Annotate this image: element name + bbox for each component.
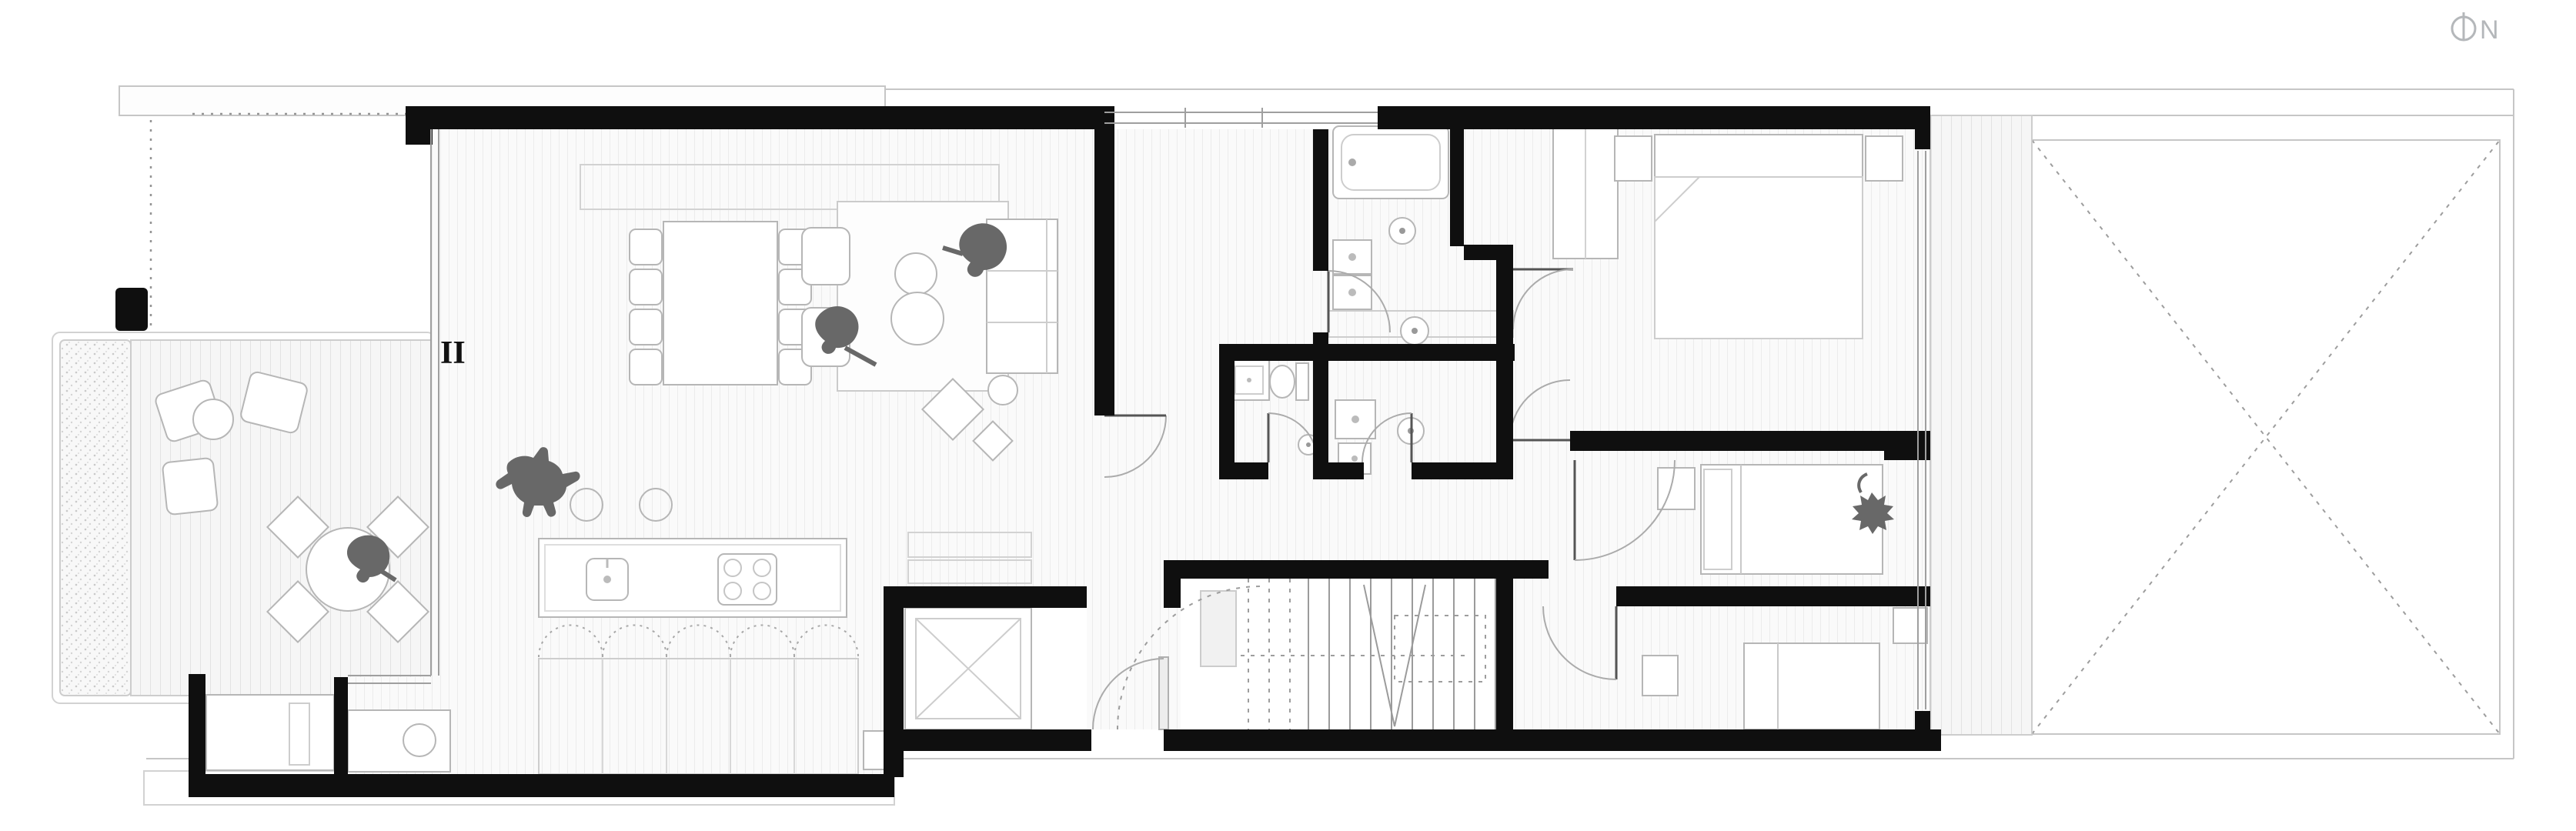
wall-niche-left: [884, 608, 904, 777]
side-table: [988, 375, 1017, 405]
wall: [1219, 462, 1268, 479]
bathtub-faucet: [1348, 159, 1356, 166]
nightstand: [1866, 136, 1903, 181]
wall-niche-top: [884, 586, 1087, 608]
garden-bed: [60, 340, 131, 696]
washbasin-drain: [1399, 228, 1405, 234]
dryer-drum: [1348, 289, 1356, 296]
floor-plan-root: NII: [52, 12, 2514, 805]
wall-stair-top: [1164, 560, 1549, 579]
wall: [1219, 344, 1515, 361]
wall: [1219, 361, 1235, 479]
wall: [334, 677, 348, 776]
washing-machine-drum: [1348, 253, 1356, 261]
window-seat-bench: [206, 695, 334, 770]
east-deck-strip: [1930, 115, 2032, 735]
dining-chair: [630, 269, 662, 305]
dining-chair: [630, 229, 662, 265]
toilet-bowl: [1270, 365, 1295, 398]
dining-chair: [630, 309, 662, 345]
north-window-mullions: [1185, 108, 1262, 128]
wall: [1915, 711, 1930, 731]
bed-double: [1655, 135, 1863, 339]
appliance-drum: [1351, 415, 1359, 423]
wall: [1318, 462, 1364, 479]
wc-washbasin-drain: [1306, 442, 1311, 447]
wall-hall-living: [1094, 106, 1114, 415]
wall: [1884, 431, 1930, 460]
section-marker: II: [440, 335, 466, 371]
wall: [1496, 576, 1513, 731]
coffee-table: [895, 253, 937, 295]
nightstand: [1642, 656, 1678, 696]
terrace-side-table: [193, 399, 233, 439]
floor-plan-canvas: NII: [0, 0, 2576, 831]
wall-bottom-right-a: [893, 729, 1091, 751]
hall-cabinet: [1201, 591, 1236, 666]
nightstand: [1893, 608, 1927, 643]
wall: [1915, 129, 1930, 149]
nightstand: [1615, 136, 1652, 181]
bed-single: [1744, 643, 1879, 729]
wall: [1164, 560, 1181, 608]
round-cushion: [403, 724, 436, 756]
coffee-table: [891, 292, 944, 345]
shower-drain: [1247, 378, 1251, 382]
exterior-column: [115, 288, 148, 331]
nightstand: [1658, 468, 1695, 509]
kitchen-sink-drain: [603, 576, 611, 583]
toilet-cistern: [1296, 363, 1308, 400]
wall-bottom-left: [189, 774, 894, 797]
dining-chair: [630, 349, 662, 385]
wall: [1450, 106, 1464, 246]
entry-door-leaf: [1159, 657, 1168, 729]
wall-bedroom1: [1570, 431, 1930, 451]
wall: [1496, 260, 1513, 479]
lounge-chair: [162, 458, 219, 516]
floor-plan-svg: NII: [0, 0, 2576, 831]
cabinet-knob: [1351, 456, 1358, 462]
dining-table: [663, 222, 777, 385]
armchair: [802, 228, 850, 285]
wall-bottom-right-b: [1164, 729, 1941, 751]
wall: [1313, 129, 1328, 271]
wall: [189, 674, 205, 776]
wall-bedroom2: [1616, 586, 1930, 606]
wall: [1464, 245, 1513, 260]
kitchen-island: [539, 539, 847, 617]
north-label: N: [2480, 15, 2499, 45]
washbasin-drain: [1412, 328, 1418, 334]
wall-top-living: [406, 106, 1104, 129]
north-window-band: [1104, 112, 1378, 123]
